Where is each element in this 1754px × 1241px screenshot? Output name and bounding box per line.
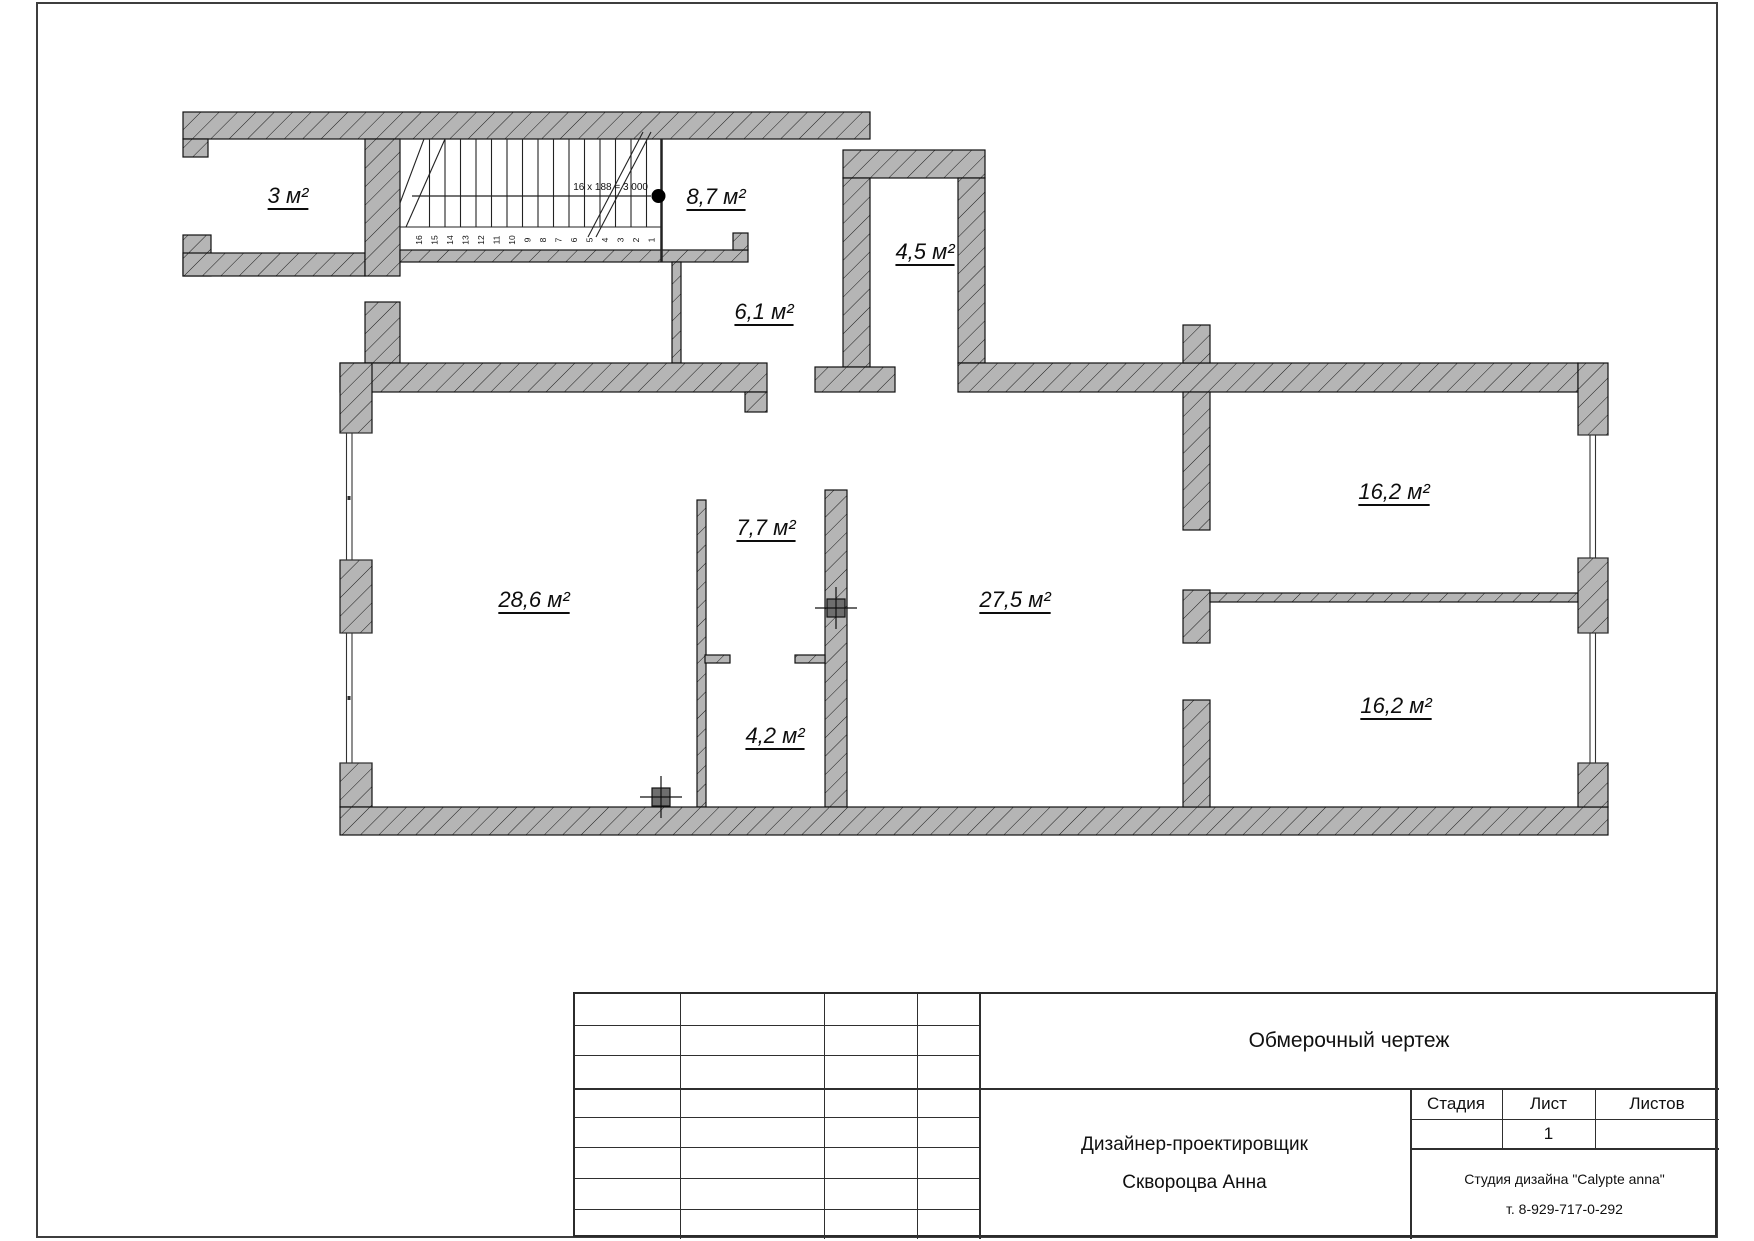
wall-bottom (340, 807, 1608, 835)
wall-top (183, 112, 870, 139)
stair-step-number: 5 (584, 237, 594, 242)
sheet-header: Лист (1502, 1088, 1595, 1119)
tb-hline (575, 1178, 979, 1179)
wall-16-2-divider (1210, 593, 1578, 602)
wall-stair-pier-lower (365, 302, 400, 363)
wall-27-5-right-upper (1183, 392, 1210, 530)
stair-step-number: 9 (522, 237, 532, 242)
wall-4-5-top (843, 150, 985, 178)
wall-main-left (340, 363, 767, 392)
sheet-number: 1 (1502, 1119, 1595, 1148)
stair-step-number: 15 (429, 235, 439, 245)
staircase (400, 132, 666, 262)
window-right-1 (1578, 435, 1608, 558)
designer-role: Дизайнер-проектировщик (1081, 1126, 1308, 1164)
stair-step-number: 4 (600, 237, 610, 242)
designer-name: Сквороцва Анна (1122, 1164, 1266, 1202)
stair-winder-line1 (406, 139, 445, 227)
drawing-title: Обмерочный чертеж (979, 994, 1719, 1088)
studio-name: Студия дизайна "Calypte anna" (1464, 1164, 1665, 1194)
studio-phone: т. 8-929-717-0-292 (1506, 1194, 1623, 1224)
wall-under-stairs (400, 250, 748, 262)
wall-stub-left-top (183, 139, 208, 157)
wall-partition-28-6 (697, 500, 706, 807)
stair-step-number: 14 (445, 235, 455, 245)
wall-door-jamb-hall (733, 233, 748, 250)
wall-27-5-left (825, 490, 847, 807)
wall-stair-pier (365, 139, 400, 276)
window-right-2 (1578, 633, 1608, 763)
stair-step-number: 3 (615, 237, 625, 242)
wall-left-pier2 (340, 560, 372, 633)
drawing-sheet: 16 x 188 = 3 000 12345678910111213141516… (0, 0, 1754, 1241)
stage-header: Стадия (1410, 1088, 1502, 1119)
wall-right-pier1 (1578, 363, 1608, 435)
tb-hline (575, 1025, 979, 1026)
stair-start-dot (652, 189, 666, 203)
stair-step-number: 13 (460, 235, 470, 245)
stair-formula: 16 x 188 = 3 000 (573, 182, 648, 193)
window-left-2 (340, 633, 372, 763)
wall-stub-above-main (1183, 325, 1210, 363)
wall-27-5-right-mid (1183, 590, 1210, 643)
room-area-label-7-7: 7,7 м² (736, 515, 795, 541)
room-area-label-6-1: 6,1 м² (734, 299, 793, 325)
stair-step-number: 12 (476, 235, 486, 245)
room-area-label-4-2: 4,2 м² (745, 723, 804, 749)
wall-4-5-left (843, 178, 870, 367)
tb-hline (575, 1209, 979, 1210)
wall-27-5-right-lower (1183, 700, 1210, 807)
wall-main-right (958, 363, 1578, 392)
designer-cell: Дизайнер-проектировщик Сквороцва Анна (979, 1088, 1410, 1239)
wall-4-2-jamb-right (795, 655, 825, 663)
sheets-header: Листов (1595, 1088, 1719, 1119)
room-area-label-8-7: 8,7 м² (686, 184, 745, 210)
wall-left-pier1 (340, 363, 372, 433)
wall-right-pier2 (1578, 558, 1608, 633)
wall-room3-bottom (183, 253, 365, 276)
stair-step-number: 6 (569, 237, 579, 242)
stair-step-numbers: 12345678910111213141516 (414, 235, 657, 245)
wall-partition-6-1 (672, 262, 681, 363)
stair-step-number: 7 (553, 237, 563, 242)
title-block: Обмерочный чертеж Дизайнер-проектировщик… (573, 992, 1717, 1237)
tb-hline (575, 1147, 979, 1148)
room-area-label-4-5: 4,5 м² (895, 239, 954, 265)
stair-step-number: 16 (414, 235, 424, 245)
room-area-label-3: 3 м² (268, 183, 309, 209)
wall-right-pier3 (1578, 763, 1608, 807)
room-area-label-16-2-upper: 16,2 м² (1358, 479, 1429, 505)
stair-step-number: 11 (491, 235, 501, 244)
tb-hline (575, 1117, 979, 1118)
wall-left-pier3 (340, 763, 372, 807)
tb-hline (575, 1055, 979, 1056)
window-left-1 (340, 433, 372, 560)
wall-main-junction (815, 367, 895, 392)
wall-4-2-jamb-left (705, 655, 730, 663)
walls-layer (183, 112, 1608, 835)
wall-stub-corridor (745, 392, 767, 412)
stair-step-number: 10 (507, 235, 517, 245)
room-area-label-27-5: 27,5 м² (979, 587, 1050, 613)
stair-step-number: 1 (646, 237, 656, 242)
wall-4-5-right (958, 178, 985, 363)
studio-cell: Студия дизайна "Calypte anna" т. 8-929-7… (1410, 1148, 1719, 1239)
room-area-label-28-6: 28,6 м² (498, 587, 569, 613)
stair-step-number: 8 (538, 237, 548, 242)
room-area-label-16-2-lower: 16,2 м² (1360, 693, 1431, 719)
shaft-symbol-2 (815, 587, 857, 629)
stair-step-number: 2 (631, 237, 641, 242)
